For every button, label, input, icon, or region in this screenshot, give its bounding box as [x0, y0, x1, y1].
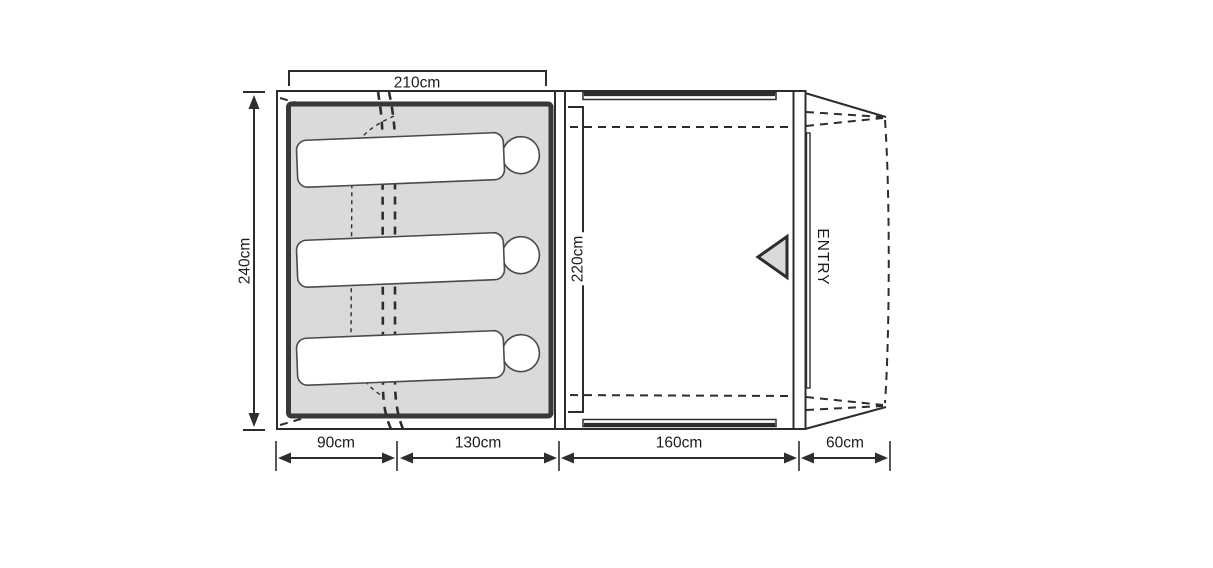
dim-label-60cm: 60cm [826, 435, 864, 451]
entry-arrow-icon [758, 237, 787, 278]
arrowhead-right [784, 453, 797, 464]
porch-door-dashed-edge [885, 120, 889, 403]
sleeper-body [296, 232, 505, 287]
arrowhead-right [544, 453, 557, 464]
floorplan-drawing [0, 0, 1213, 568]
sleeper-body [296, 132, 505, 187]
sleeper-head [502, 136, 540, 174]
dim-label-160cm: 160cm [656, 435, 703, 451]
porch-edge-top [805, 93, 886, 117]
arrowhead-left [278, 453, 291, 464]
porch-edge-bottom [805, 407, 886, 429]
entry-door-panel [807, 133, 811, 388]
arrowhead-left [400, 453, 413, 464]
entry-label: ENTRY [814, 228, 830, 285]
front-wall [794, 91, 806, 429]
arrowhead-right [382, 453, 395, 464]
side-windows [583, 93, 776, 427]
arrowhead-right [875, 453, 888, 464]
dim-label-220cm: 220cm [568, 233, 588, 286]
ridge-line-top-porch [806, 118, 883, 126]
dim-chain-bottom [276, 441, 890, 471]
arrowhead-left [801, 453, 814, 464]
arrowhead-left [561, 453, 574, 464]
sleeper-head [502, 236, 540, 274]
porch-fold-bottom [806, 406, 883, 410]
arrowhead-down [249, 413, 260, 427]
arrowhead-up [249, 95, 260, 109]
dim-label-90cm: 90cm [317, 435, 355, 451]
room-divider [555, 91, 565, 429]
dim-label-240cm: 240cm [237, 238, 253, 285]
ridge-line-bottom-living [556, 395, 794, 396]
dim-label-130cm: 130cm [455, 435, 502, 451]
ridge-line-bottom-porch [806, 397, 883, 405]
sleeper-head [502, 334, 540, 372]
dim-label-210cm: 210cm [394, 75, 441, 91]
tent-floorplan-diagram: 210cm 240cm 220cm ENTRY 90cm 130cm 160cm… [0, 0, 1213, 568]
sleeper-body [296, 330, 505, 385]
